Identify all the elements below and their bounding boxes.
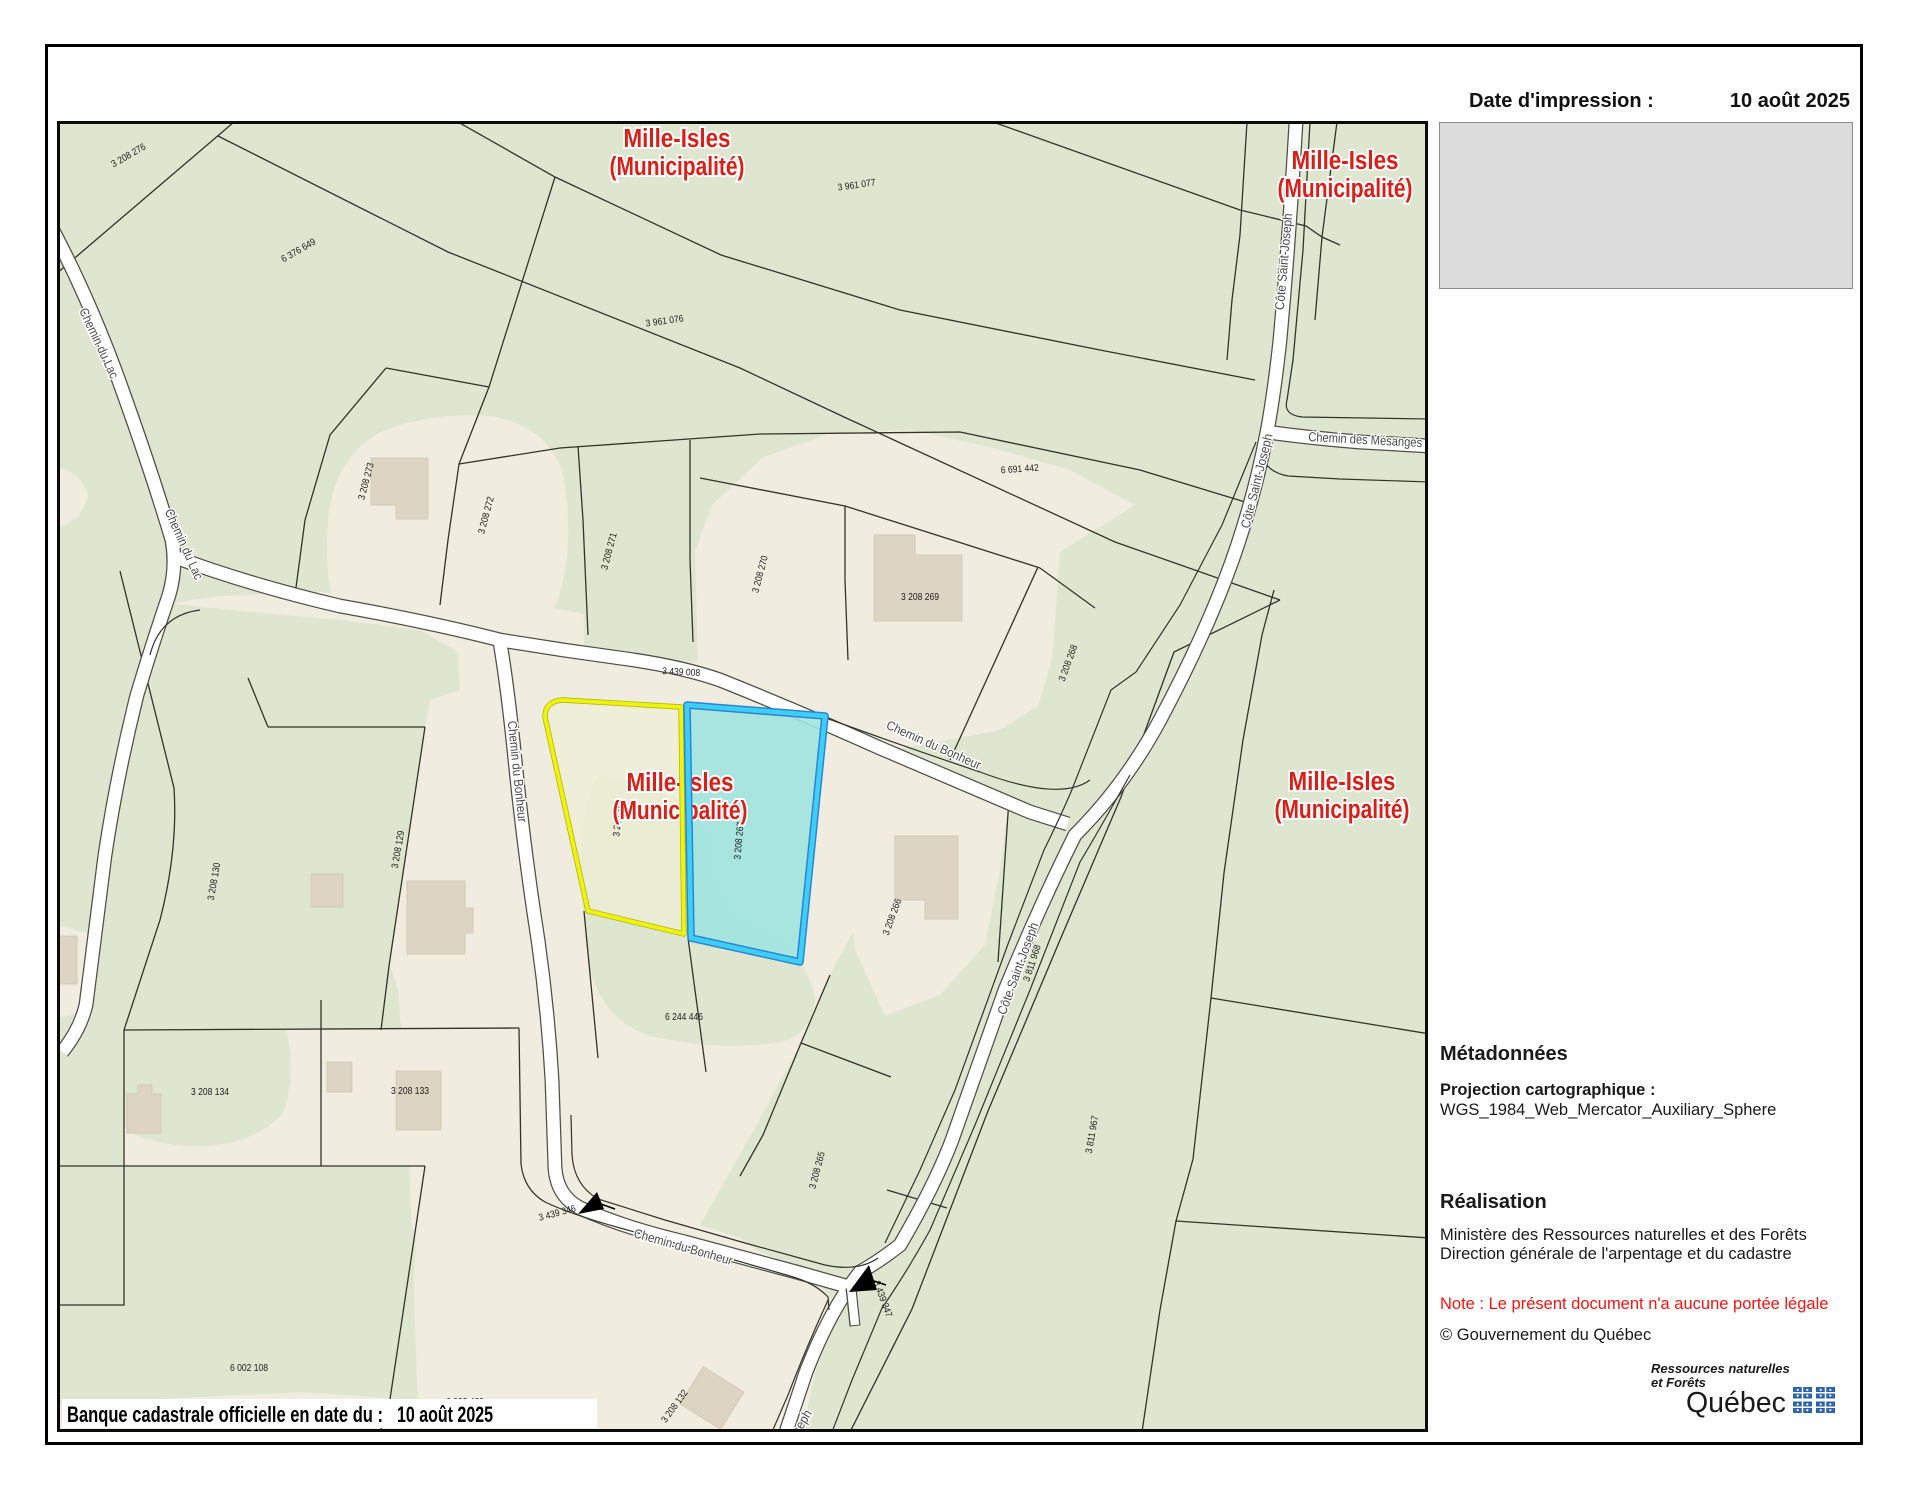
svg-text:(Municipalité): (Municipalité) xyxy=(1275,796,1410,824)
svg-text:Mille-Isles: Mille-Isles xyxy=(1289,768,1396,796)
svg-text:3 208 133: 3 208 133 xyxy=(391,1086,429,1097)
svg-text:Mille-Isles: Mille-Isles xyxy=(1292,147,1399,175)
svg-text:10 août 2025: 10 août 2025 xyxy=(397,1402,493,1427)
svg-text:(Municipalité): (Municipalité) xyxy=(610,153,745,181)
svg-text:3 439 008: 3 439 008 xyxy=(662,666,701,679)
svg-text:Mille-Isles: Mille-Isles xyxy=(624,125,731,153)
svg-text:(Municipalité): (Municipalité) xyxy=(1278,175,1413,203)
svg-text:Banque cadastrale officielle e: Banque cadastrale officielle en date du … xyxy=(67,1402,383,1427)
svg-text:3 208 269: 3 208 269 xyxy=(901,592,939,603)
svg-text:3 208 134: 3 208 134 xyxy=(191,1087,230,1098)
svg-text:6 002 108: 6 002 108 xyxy=(230,1363,268,1374)
svg-text:6 244 446: 6 244 446 xyxy=(665,1012,703,1023)
